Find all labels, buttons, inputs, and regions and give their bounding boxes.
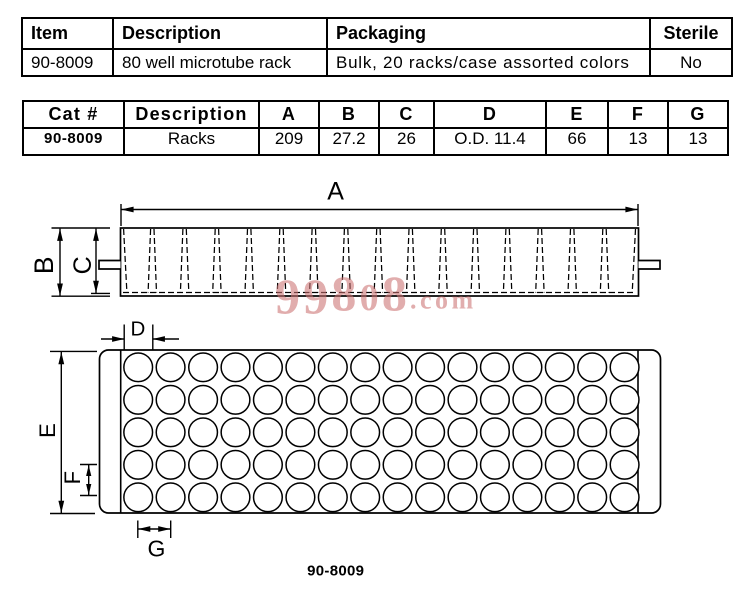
svg-text:D: D	[130, 318, 145, 341]
svg-text:90-8009: 90-8009	[307, 562, 364, 579]
svg-text:C: C	[69, 256, 97, 274]
svg-text:F: F	[60, 471, 85, 484]
svg-text:G: G	[148, 536, 166, 562]
svg-text:A: A	[327, 178, 344, 206]
svg-text:E: E	[35, 423, 60, 438]
svg-text:B: B	[29, 256, 59, 274]
